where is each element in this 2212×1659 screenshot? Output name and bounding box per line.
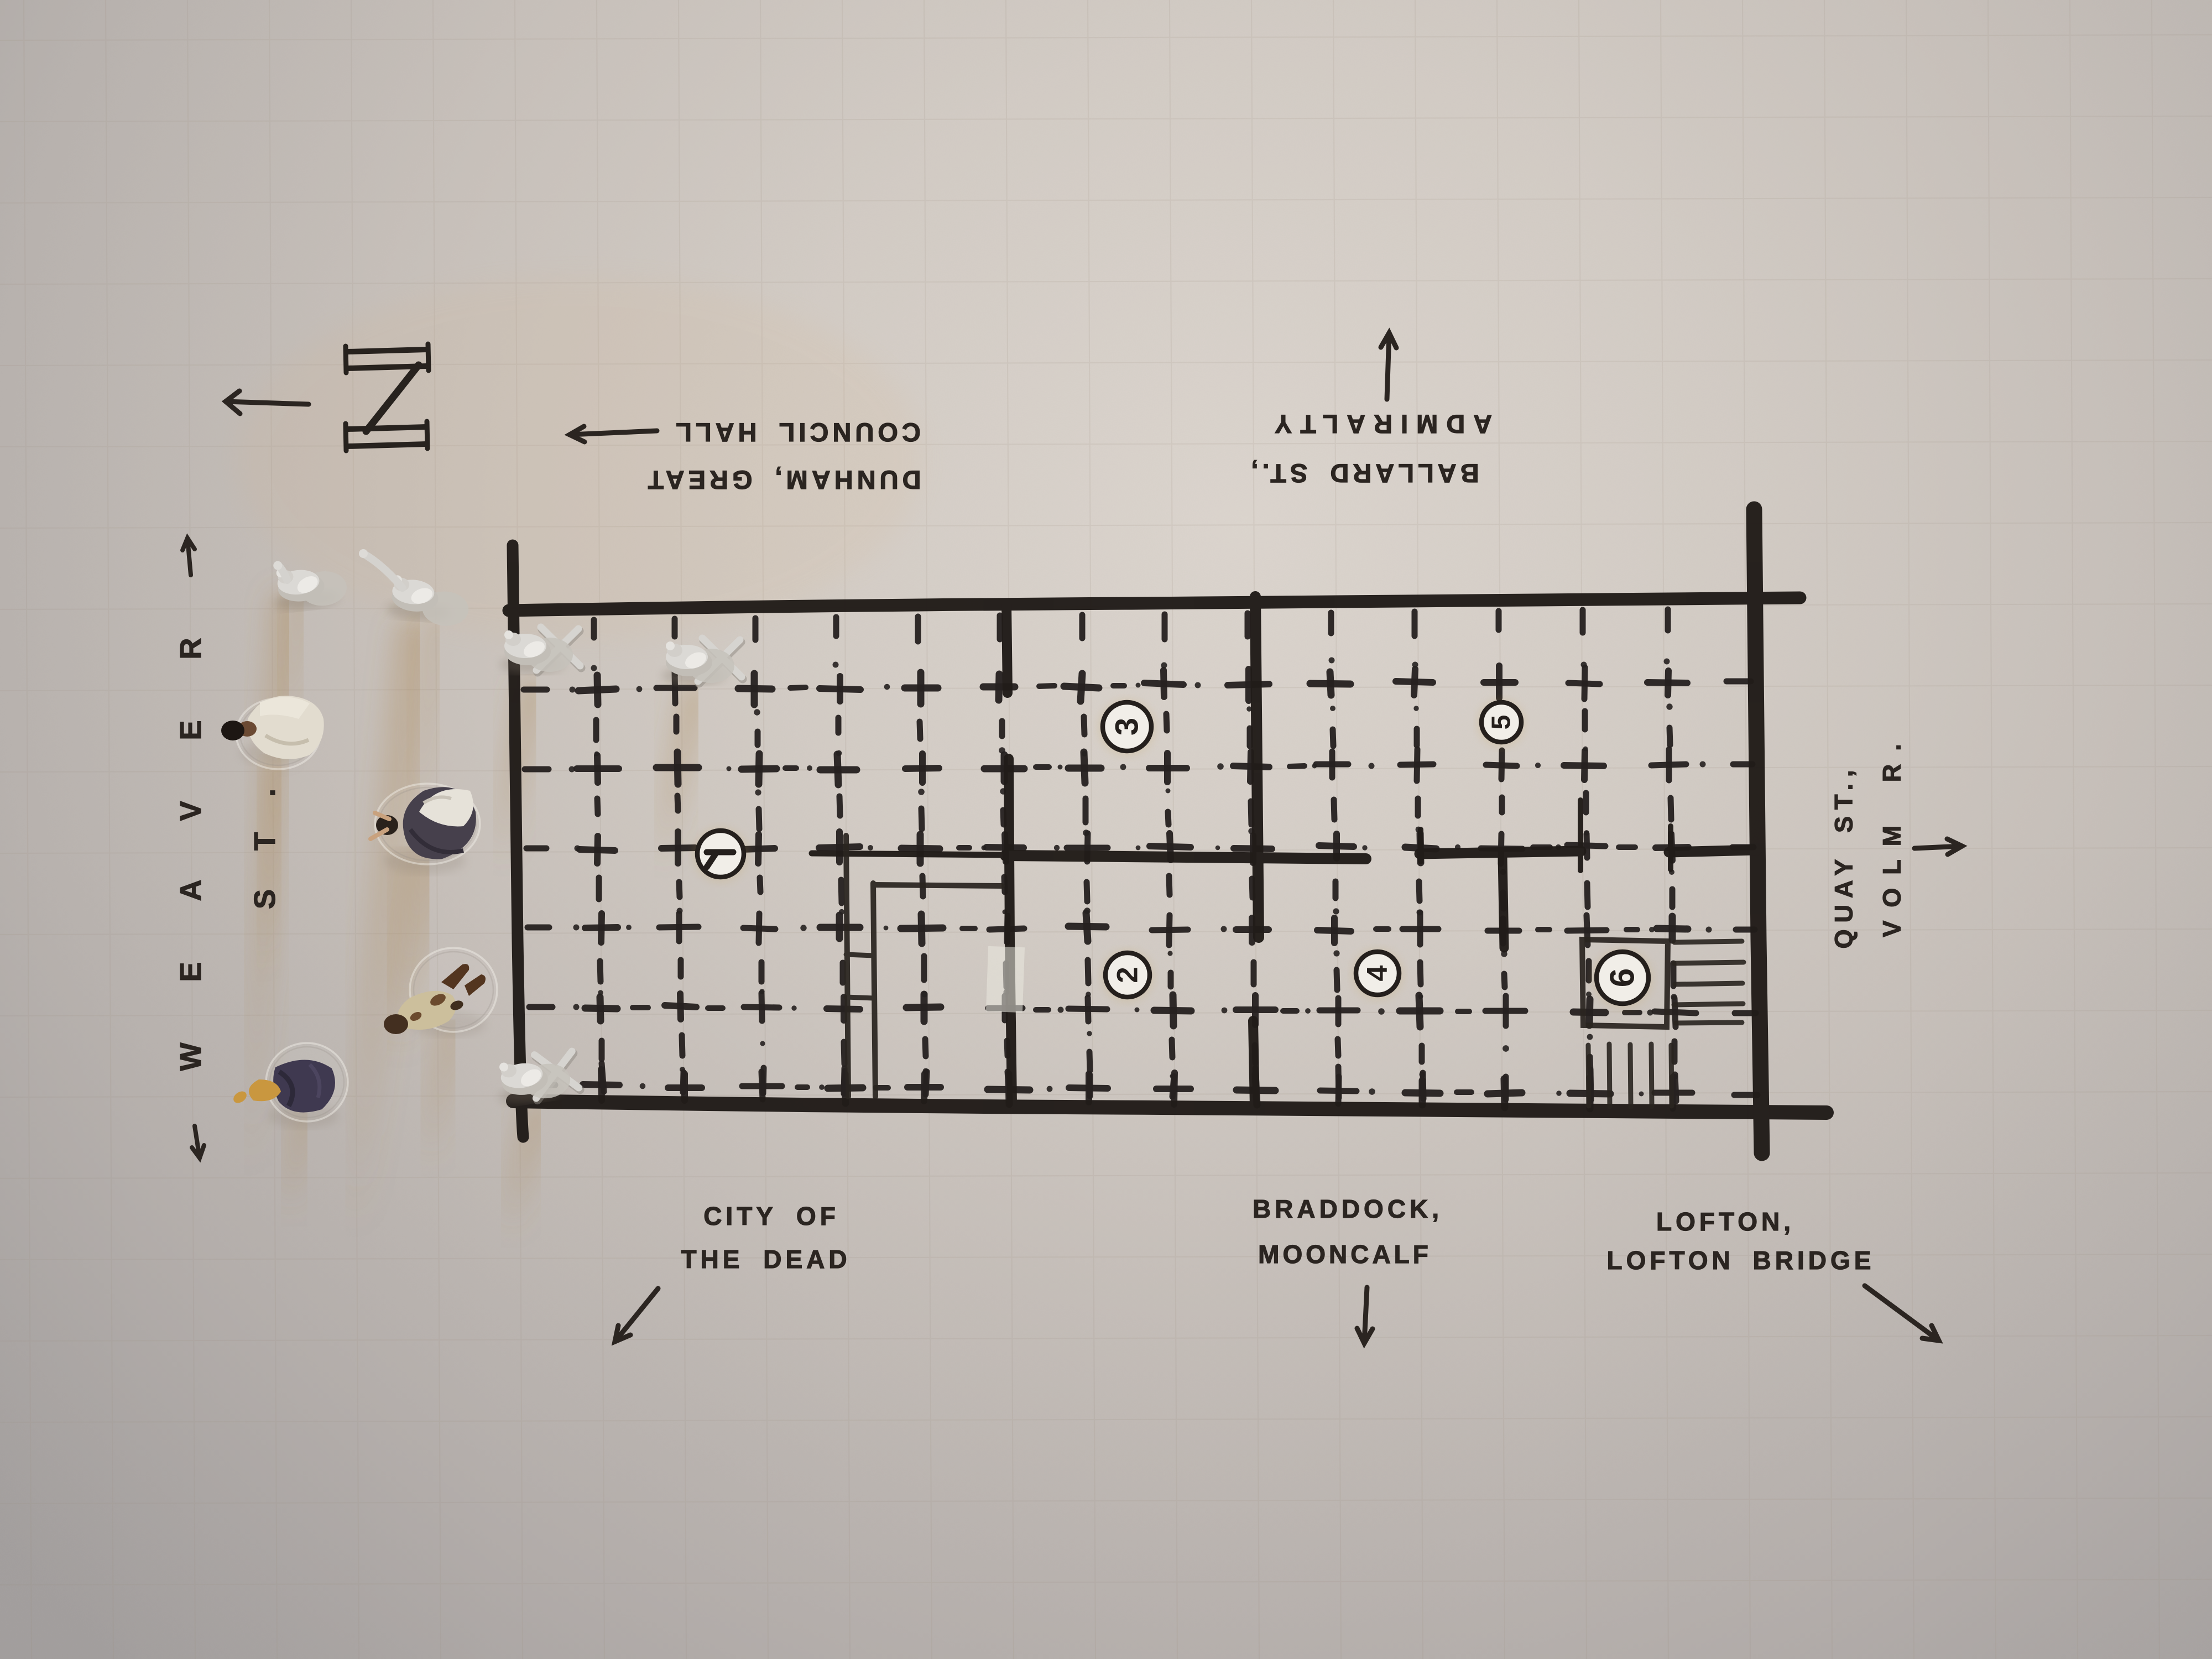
svg-text:WEAVER: WEAVER (174, 577, 207, 1071)
svg-text:5: 5 (1487, 715, 1516, 730)
svg-text:BRADDOCK,: BRADDOCK, (1253, 1194, 1443, 1223)
svg-text:DUNHAM, GREAT: DUNHAM, GREAT (644, 466, 921, 495)
svg-text:ST.: ST. (248, 750, 281, 909)
svg-text:2: 2 (1112, 967, 1144, 983)
svg-text:4: 4 (1361, 965, 1394, 981)
svg-text:ADMIRALTY: ADMIRALTY (1266, 410, 1492, 439)
svg-text:QUAY ST.,: QUAY ST., (1830, 763, 1858, 948)
svg-text:VOLM R.: VOLM R. (1878, 731, 1906, 937)
svg-text:LOFTON,: LOFTON, (1656, 1207, 1794, 1236)
svg-text:CITY OF: CITY OF (703, 1202, 839, 1230)
svg-text:LOFTON BRIDGE: LOFTON BRIDGE (1607, 1246, 1875, 1275)
svg-text:COUNCIL HALL: COUNCIL HALL (672, 418, 921, 447)
svg-text:3: 3 (1109, 718, 1145, 735)
svg-text:6: 6 (1604, 968, 1642, 987)
svg-text:BALLARD ST.,: BALLARD ST., (1247, 459, 1479, 488)
svg-text:THE DEAD: THE DEAD (681, 1245, 851, 1274)
svg-text:MOONCALF: MOONCALF (1258, 1240, 1432, 1269)
